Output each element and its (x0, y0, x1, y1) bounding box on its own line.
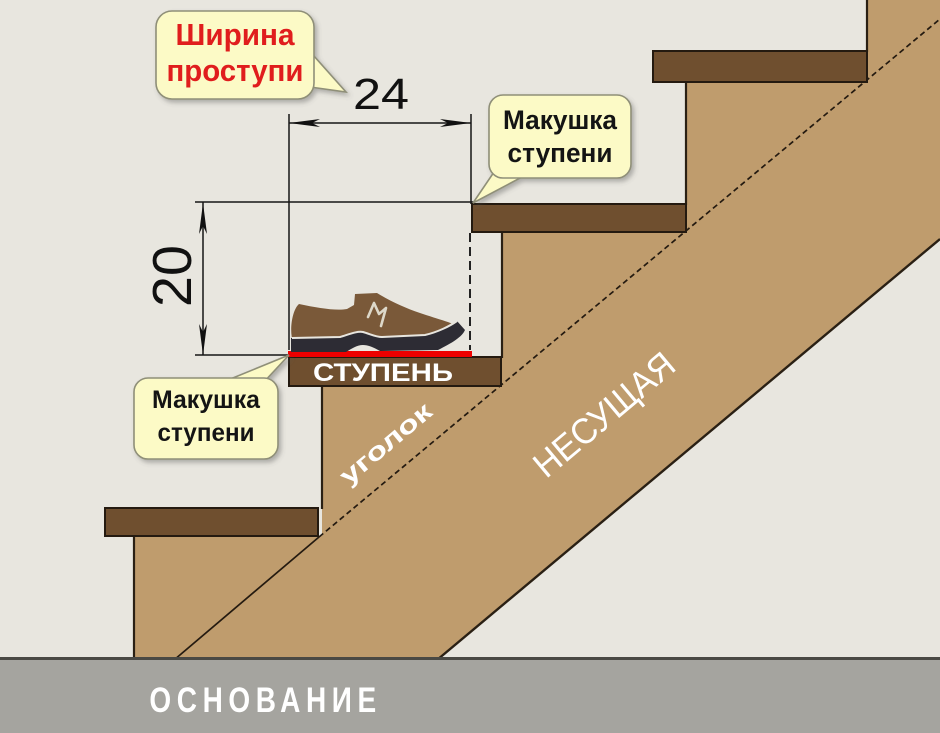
svg-text:Макушка: Макушка (152, 386, 261, 414)
svg-text:ступени: ступени (508, 138, 613, 168)
svg-text:проступи: проступи (167, 53, 304, 88)
svg-text:24: 24 (353, 70, 409, 119)
svg-text:СТУПЕНЬ: СТУПЕНЬ (313, 359, 453, 387)
svg-text:ступени: ступени (158, 419, 255, 447)
svg-text:20: 20 (141, 245, 203, 307)
svg-text:Ширина: Ширина (176, 17, 296, 52)
svg-text:Макушка: Макушка (503, 105, 618, 135)
svg-text:ОСНОВАНИЕ: ОСНОВАНИЕ (149, 680, 381, 720)
